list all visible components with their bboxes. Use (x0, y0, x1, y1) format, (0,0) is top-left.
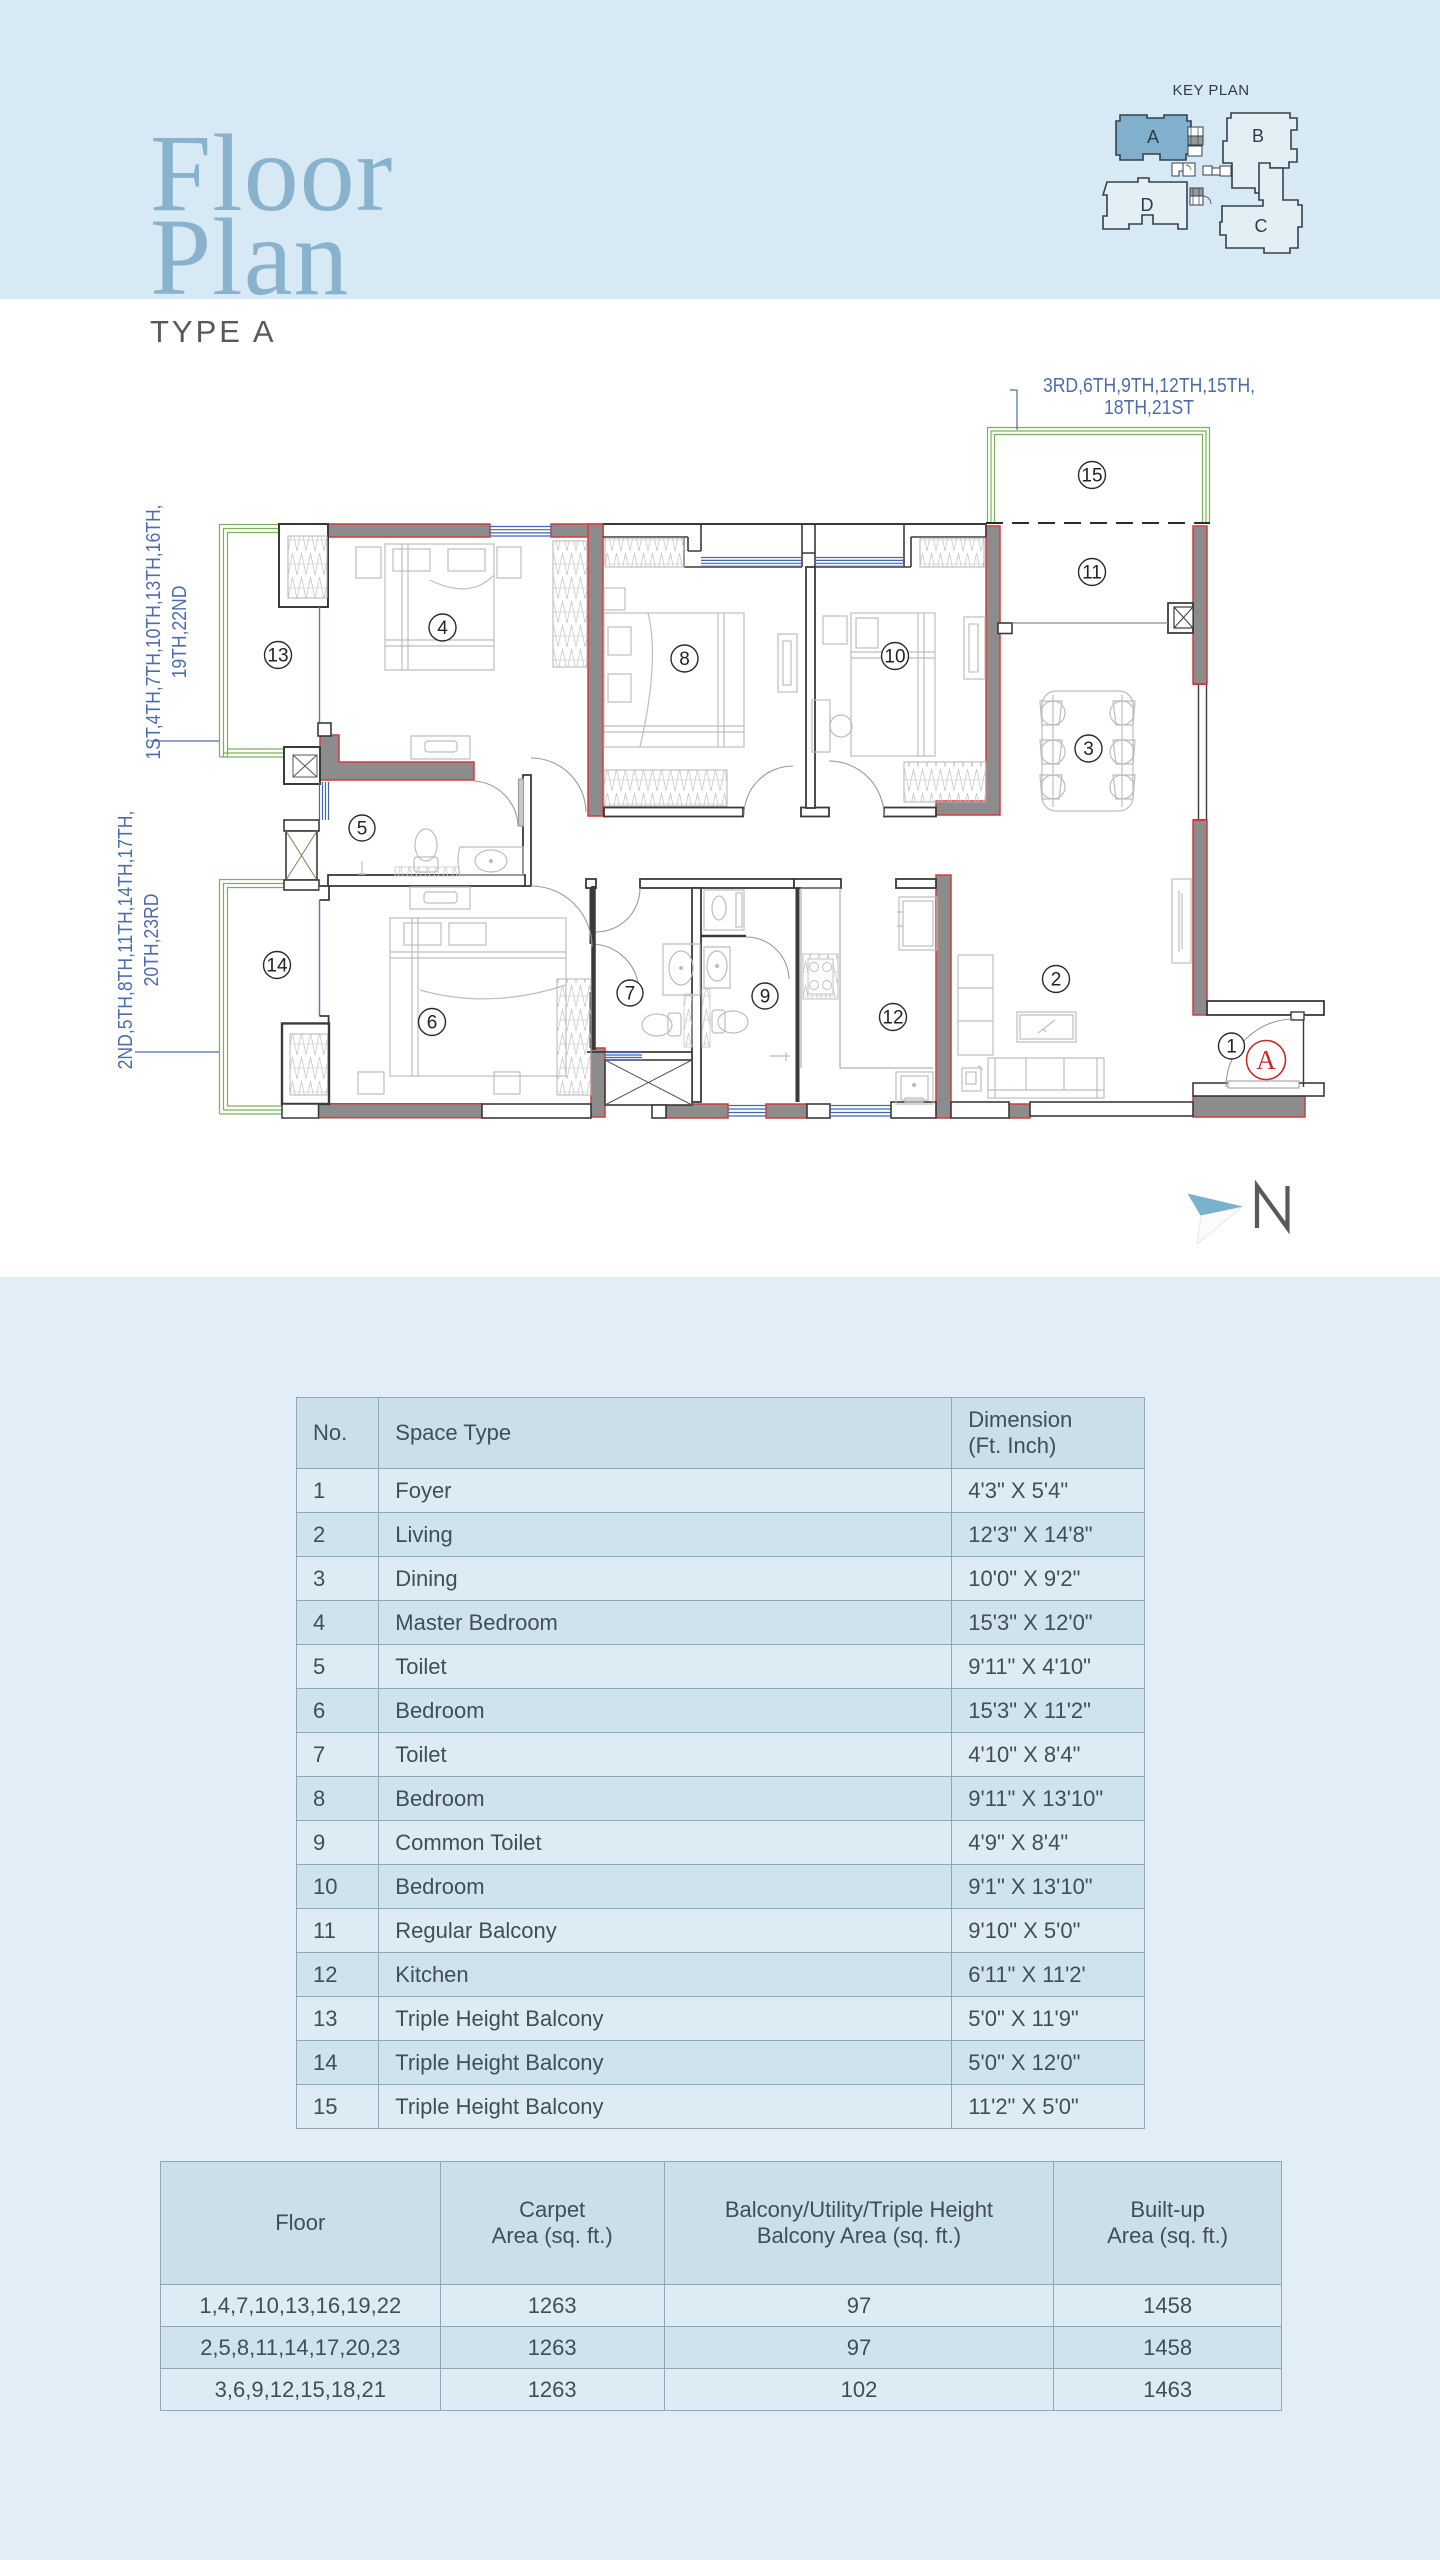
svg-text:1: 1 (1226, 1037, 1237, 1058)
svg-text:2: 2 (1051, 970, 1062, 991)
svg-text:C: C (1255, 216, 1268, 236)
svg-text:6: 6 (427, 1013, 438, 1034)
svg-text:B: B (1252, 126, 1264, 146)
svg-text:A: A (1147, 127, 1159, 147)
svg-text:12: 12 (882, 1008, 903, 1029)
svg-text:14: 14 (266, 956, 288, 977)
svg-text:15: 15 (1081, 466, 1102, 487)
svg-text:A: A (1256, 1045, 1276, 1075)
svg-text:1ST,4TH,7TH,10TH,13TH,16TH,: 1ST,4TH,7TH,10TH,13TH,16TH, (142, 504, 164, 759)
svg-text:5: 5 (357, 819, 368, 840)
svg-text:2ND,5TH,8TH,11TH,14TH,17TH,: 2ND,5TH,8TH,11TH,14TH,17TH, (114, 811, 136, 1070)
svg-text:KEY PLAN: KEY PLAN (1172, 82, 1249, 99)
svg-text:13: 13 (267, 646, 288, 667)
svg-text:8: 8 (679, 649, 690, 670)
svg-text:11: 11 (1082, 563, 1102, 584)
svg-text:3RD,6TH,9TH,12TH,15TH,: 3RD,6TH,9TH,12TH,15TH, (1043, 374, 1255, 396)
svg-text:20TH,23RD: 20TH,23RD (140, 894, 162, 987)
svg-text:19TH,22ND: 19TH,22ND (168, 586, 190, 679)
svg-text:10: 10 (884, 647, 905, 668)
svg-text:3: 3 (1083, 739, 1094, 760)
svg-text:4: 4 (437, 618, 448, 639)
svg-text:18TH,21ST: 18TH,21ST (1104, 396, 1194, 418)
svg-text:7: 7 (625, 984, 636, 1005)
svg-text:9: 9 (760, 987, 771, 1008)
svg-text:D: D (1141, 195, 1154, 215)
